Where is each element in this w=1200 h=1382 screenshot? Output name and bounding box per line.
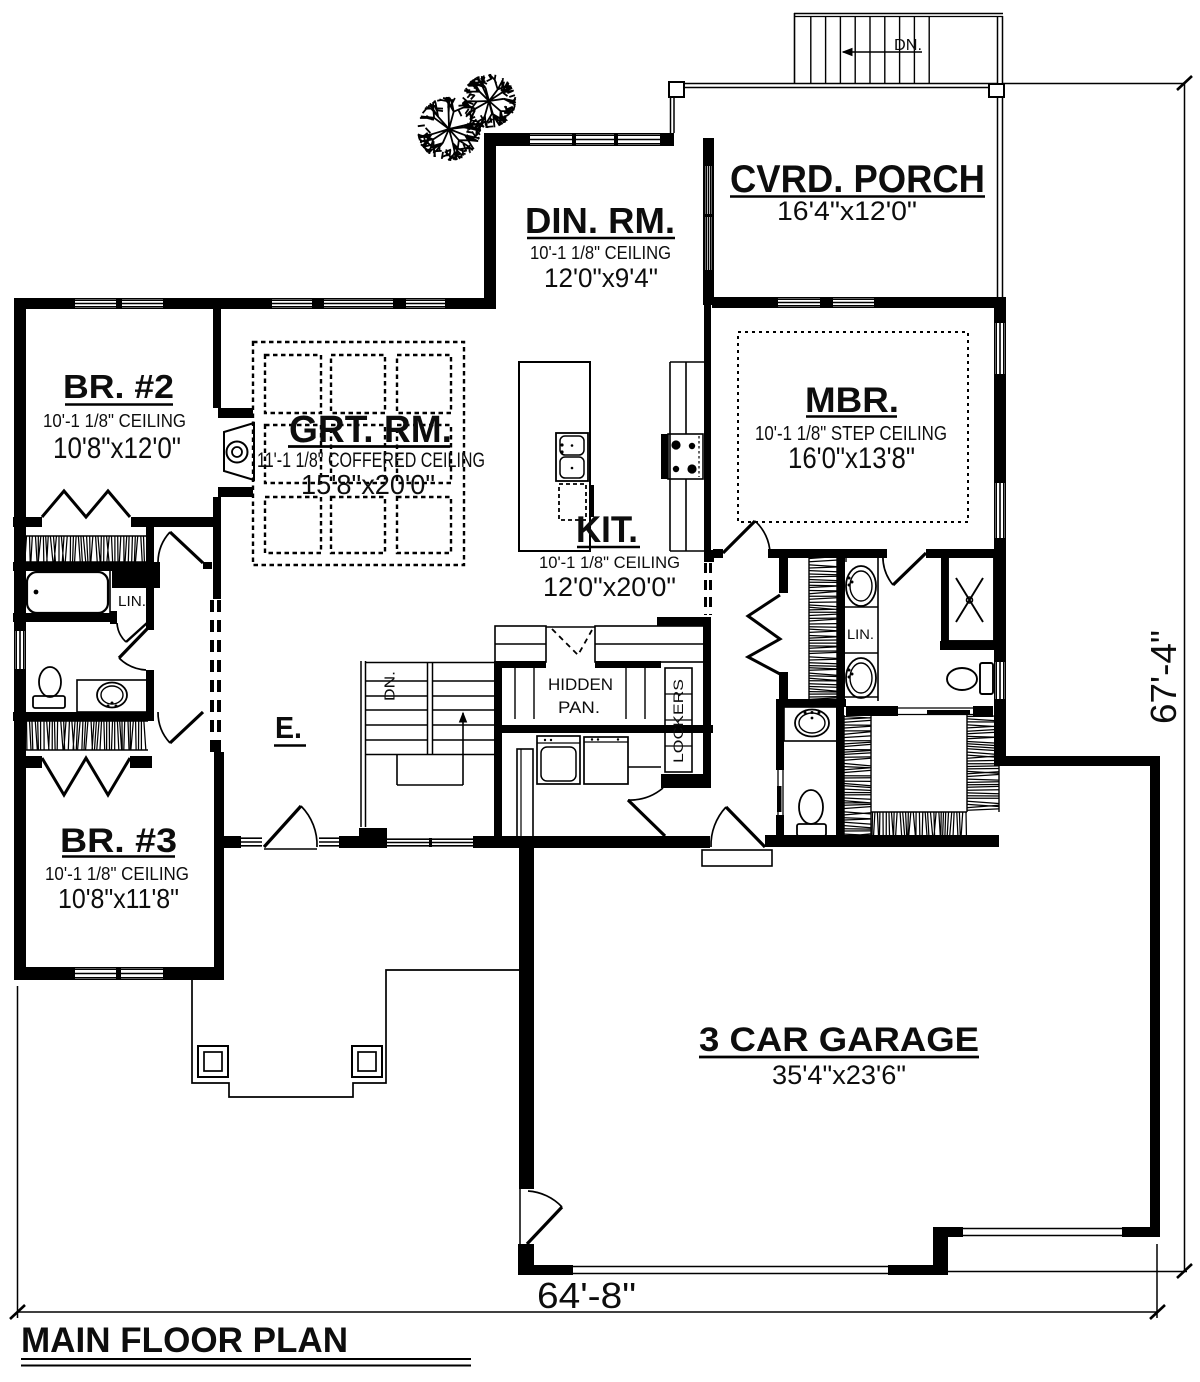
svg-text:HIDDEN: HIDDEN [548,675,613,694]
svg-text:LOCKERS: LOCKERS [670,679,686,763]
svg-text:10'8"x12'0": 10'8"x12'0" [53,432,181,465]
svg-text:10'-1 1/8" CEILING: 10'-1 1/8" CEILING [530,243,671,263]
svg-text:12'0"x9'4": 12'0"x9'4" [544,263,658,293]
svg-text:35'4"x23'6": 35'4"x23'6" [772,1060,906,1090]
svg-text:GRT. RM.: GRT. RM. [289,409,452,451]
svg-text:3 CAR GARAGE: 3 CAR GARAGE [699,1021,979,1059]
svg-text:10'-1 1/8" CEILING: 10'-1 1/8" CEILING [539,553,680,572]
svg-text:10'8"x11'8": 10'8"x11'8" [58,883,179,914]
svg-text:10'-1 1/8" CEILING: 10'-1 1/8" CEILING [45,864,189,884]
svg-text:MBR.: MBR. [805,381,899,420]
svg-text:BR. #3: BR. #3 [60,822,177,860]
svg-text:DN.: DN. [381,671,398,701]
svg-text:KIT.: KIT. [576,509,638,550]
svg-text:PAN.: PAN. [558,698,600,717]
svg-text:15'8"x20'0": 15'8"x20'0" [301,469,435,500]
svg-text:LIN.: LIN. [118,593,146,610]
svg-text:BR. #2: BR. #2 [63,368,174,405]
svg-text:67'-4": 67'-4" [1143,630,1184,724]
svg-text:CVRD. PORCH: CVRD. PORCH [730,158,985,201]
svg-text:MAIN FLOOR PLAN: MAIN FLOOR PLAN [21,1321,348,1360]
svg-text:LIN.: LIN. [847,626,874,642]
svg-text:16'0"x13'8": 16'0"x13'8" [788,442,915,475]
svg-text:10'-1 1/8" CEILING: 10'-1 1/8" CEILING [43,411,186,431]
svg-text:E.: E. [275,710,302,745]
svg-text:64'-8": 64'-8" [537,1275,636,1316]
svg-text:16'4"x12'0": 16'4"x12'0" [777,196,917,226]
svg-text:12'0"x20'0": 12'0"x20'0" [543,572,676,602]
svg-text:DIN. RM.: DIN. RM. [525,200,675,241]
